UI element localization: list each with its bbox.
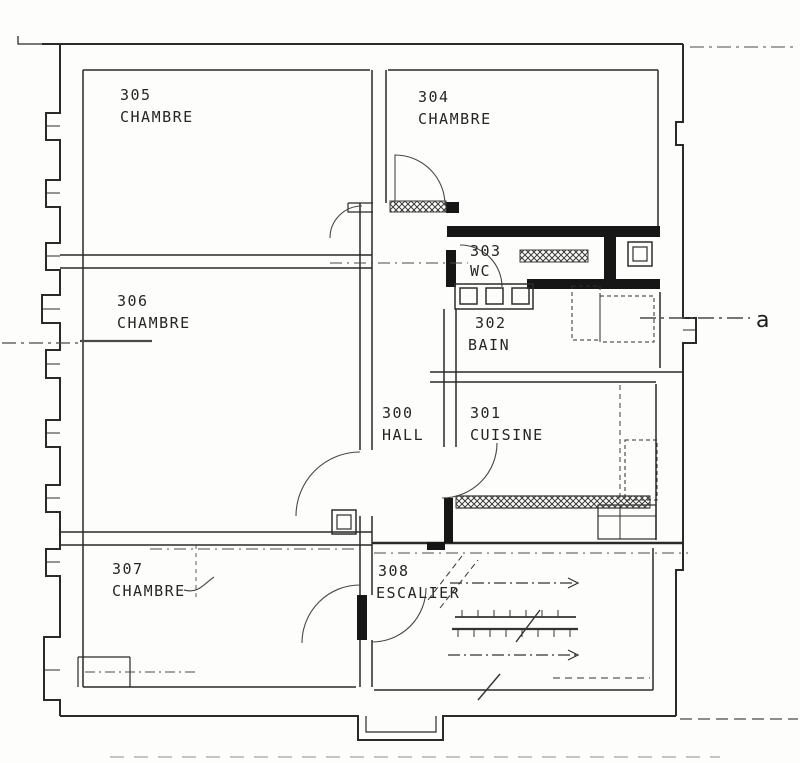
room-307-name: CHAMBRE <box>112 582 186 600</box>
room-300-number: 300 <box>382 404 414 422</box>
stair-treads <box>458 610 570 637</box>
shaft-square <box>628 242 652 266</box>
staircase <box>428 556 650 700</box>
kitchen-sink <box>598 505 656 539</box>
basin-1 <box>460 288 477 304</box>
chimney-306 <box>332 510 356 534</box>
room-labels: 305 CHAMBRE 304 CHAMBRE 303 WC 306 CHAMB… <box>112 86 769 602</box>
room-305-number: 305 <box>120 86 152 104</box>
scanned-floor-plan: 305 CHAMBRE 304 CHAMBRE 303 WC 306 CHAMB… <box>0 0 800 763</box>
floor-plan-canvas: 305 CHAMBRE 304 CHAMBRE 303 WC 306 CHAMB… <box>0 0 800 763</box>
basin-3 <box>512 288 529 304</box>
room-303-name: WC <box>470 262 491 280</box>
room-303-number: 303 <box>470 242 502 260</box>
room-306-name: CHAMBRE <box>117 314 191 332</box>
leader-307 <box>184 577 214 591</box>
section-lines <box>2 47 798 757</box>
room-304-name: CHAMBRE <box>418 110 492 128</box>
room-304-number: 304 <box>418 88 450 106</box>
room-300-name: HALL <box>382 426 424 444</box>
basin-2 <box>486 288 503 304</box>
room-308-number: 308 <box>378 562 410 580</box>
room-302-number: 302 <box>475 314 507 332</box>
room-305-name: CHAMBRE <box>120 108 194 126</box>
stair-bottom-slash <box>478 674 500 700</box>
room-301-number: 301 <box>470 404 502 422</box>
room-302-name: BAIN <box>468 336 510 354</box>
room-301-name: CUISINE <box>470 426 544 444</box>
room-307-number: 307 <box>112 560 144 578</box>
section-marker-label: a <box>756 308 769 333</box>
room-306-number: 306 <box>117 292 149 310</box>
stair-break-slash <box>516 610 540 642</box>
room-308-name: ESCALIER <box>376 584 460 602</box>
